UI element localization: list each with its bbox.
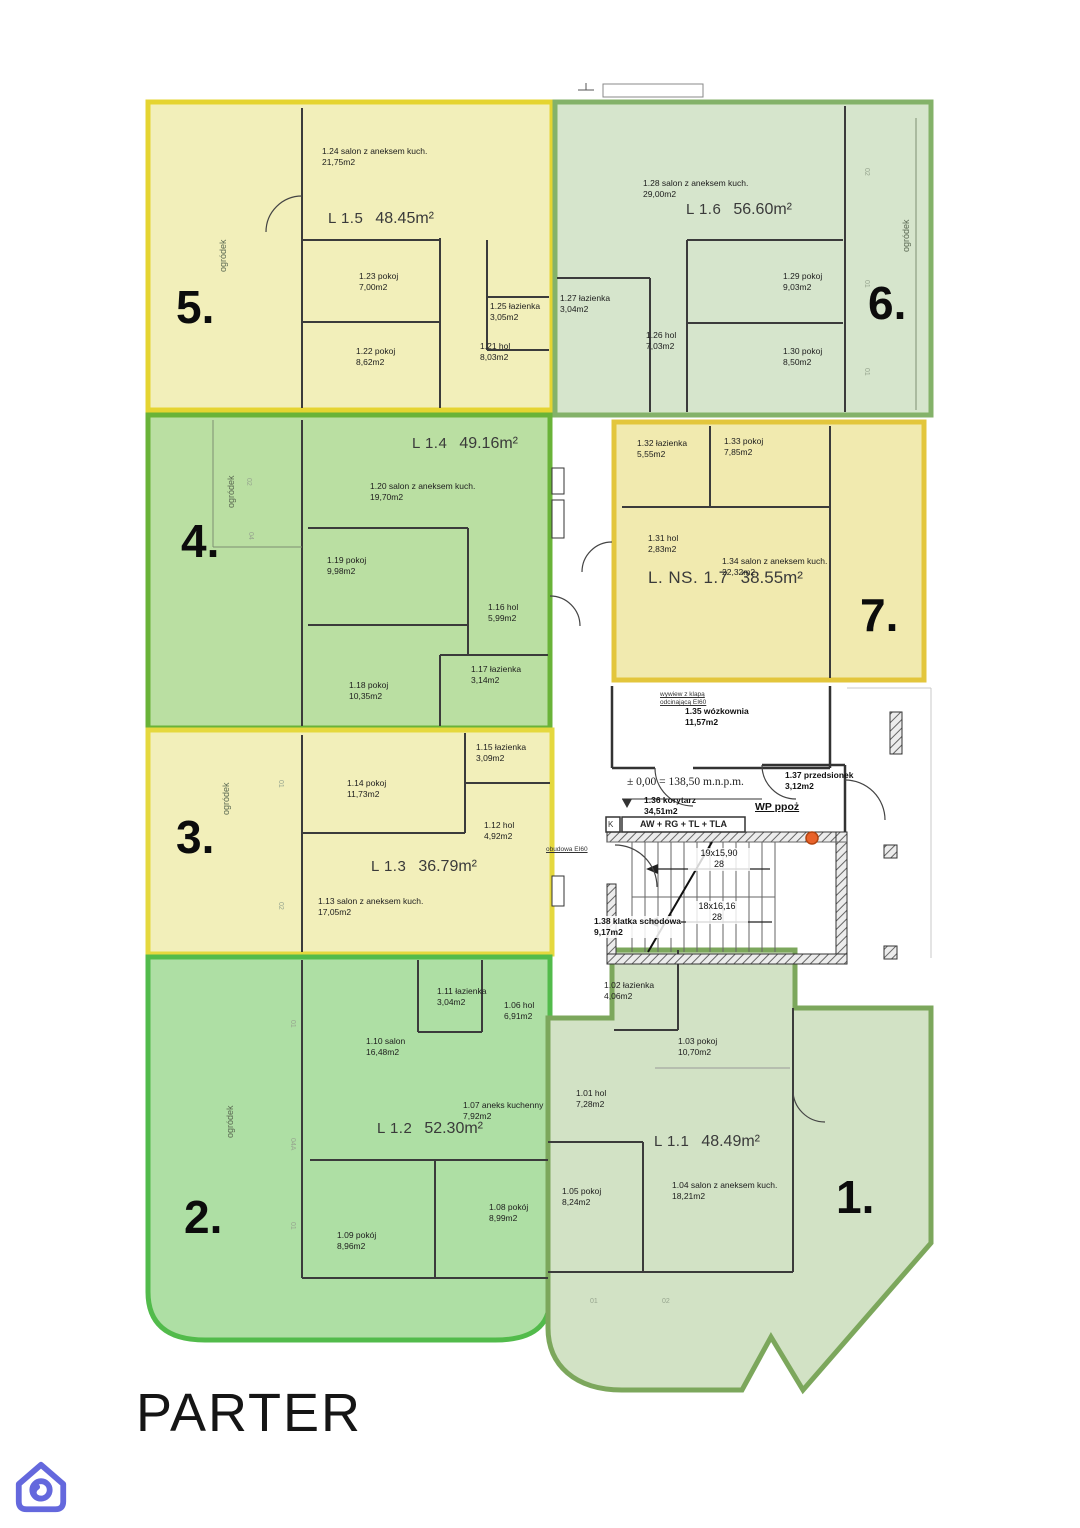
- fire-hydrant-label: WP ppoż: [755, 801, 799, 813]
- room-label: 1.03 pokoj10,70m2: [678, 1036, 717, 1058]
- unit-area: 52.30m²: [424, 1120, 483, 1138]
- window-tag: 02: [245, 478, 252, 486]
- garden-label: ogródek: [221, 782, 231, 815]
- apartment-4-number: 4.: [181, 514, 219, 568]
- fire-hydrant-marker: [806, 832, 818, 844]
- panel-k-label: K: [608, 820, 613, 829]
- room-label: 1.06 hol6,91m2: [504, 1000, 534, 1022]
- room-label: 1.33 pokoj7,85m2: [724, 436, 763, 458]
- room-label: 1.05 pokoj8,24m2: [562, 1186, 601, 1208]
- klatka-schodowa-label: 1.38 klatka schodowa9,17m2: [594, 916, 681, 938]
- window-tag: 01: [289, 1222, 296, 1230]
- garden-label: ogródek: [225, 1105, 235, 1138]
- window-tag: 04: [247, 532, 254, 540]
- apartment-2-title: L 1.2 52.30m²: [377, 1120, 483, 1138]
- room-label: 1.09 pokój8,96m2: [337, 1230, 376, 1252]
- room-label: 1.29 pokoj9,03m2: [783, 271, 822, 293]
- room-label: 1.32 łazienka5,55m2: [637, 438, 687, 460]
- apartment-1-title: L 1.1 48.49m²: [654, 1133, 760, 1151]
- room-label: 1.12 hol4,92m2: [484, 820, 514, 842]
- window-tag: 04A: [289, 1138, 296, 1150]
- apartment-6-number: 6.: [868, 276, 906, 330]
- garden-label: ogródek: [901, 219, 911, 252]
- unit-id: L 1.3: [371, 858, 406, 875]
- stairs-up-label: 19x15,9028: [688, 848, 750, 871]
- window-tag: 01: [590, 1298, 598, 1305]
- room-label: 1.14 pokoj11,73m2: [347, 778, 386, 800]
- room-label: 1.07 aneks kuchenny7,92m2: [463, 1100, 543, 1122]
- unit-area: 49.16m²: [459, 435, 518, 453]
- column: [884, 845, 897, 858]
- window-tag: 02: [662, 1298, 670, 1305]
- room-label: 1.25 łazienka3,05m2: [490, 301, 540, 323]
- window-tag: 01: [277, 780, 284, 788]
- room-label: 1.23 pokoj7,00m2: [359, 271, 398, 293]
- room-label: 1.01 hol7,28m2: [576, 1088, 606, 1110]
- przedsionek-label: 1.37 przedsionek3,12m2: [785, 770, 854, 792]
- column: [884, 946, 897, 959]
- room-label: 1.18 pokoj10,35m2: [349, 680, 388, 702]
- apartment-7-number: 7.: [860, 588, 898, 642]
- unit-area: 36.79m²: [418, 858, 477, 876]
- apartment-5-title: L 1.5 48.45m²: [328, 210, 434, 228]
- garden-label: ogródek: [218, 239, 228, 272]
- apartment-2-region: [148, 957, 550, 1340]
- shaft-box: [552, 876, 564, 906]
- room-label: 1.16 hol5,99m2: [488, 602, 518, 624]
- room-label: 1.21 hol8,03m2: [480, 341, 510, 363]
- faint-terrace-outline: [847, 688, 931, 958]
- apartment-4-title: L 1.4 49.16m²: [412, 435, 518, 453]
- room-label: 1.02 łazienka4,06m2: [604, 980, 654, 1002]
- stair-wall-bottom: [607, 954, 847, 964]
- stairs-down-label: 18x16,1628: [686, 901, 748, 924]
- apartment-2-number: 2.: [184, 1190, 222, 1244]
- window-tag: 02: [863, 168, 870, 176]
- entrance-canopy: [603, 84, 703, 97]
- room-label: 1.19 pokoj9,98m2: [327, 555, 366, 577]
- window-tag: 01: [289, 1020, 296, 1028]
- room-label: 1.30 pokoj8,50m2: [783, 346, 822, 368]
- room-label: 1.22 pokoj8,62m2: [356, 346, 395, 368]
- korytarz-label: 1.36 korytarz34,51m2: [644, 795, 696, 817]
- room-label: 1.10 salon16,48m2: [366, 1036, 405, 1058]
- unit-area: 48.49m²: [701, 1133, 760, 1151]
- apartment-5-number: 5.: [176, 280, 214, 334]
- dimension-tick: [578, 83, 594, 90]
- room-label: 1.31 hol2,83m2: [648, 533, 678, 555]
- window-tag: 01: [863, 368, 870, 376]
- apartment-3-title: L 1.3 36.79m²: [371, 858, 477, 876]
- window-tag: 02: [277, 902, 284, 910]
- room-label: 1.34 salon z aneksem kuch.22,32m2: [722, 556, 827, 578]
- apartment-6-region: [555, 102, 931, 415]
- room-label: 1.24 salon z aneksem kuch.21,75m2: [322, 146, 427, 168]
- vent-note: wywiew z klapą odcinającą EI60: [660, 691, 706, 707]
- column: [890, 712, 902, 754]
- room-label: 1.26 hol7,03m2: [646, 330, 676, 352]
- unit-area: 48.45m²: [375, 210, 434, 228]
- unit-id: L. NS. 1.7: [648, 568, 729, 588]
- unit-id: L 1.6: [686, 201, 721, 218]
- room-label: 1.11 łazienka3,04m2: [437, 986, 486, 1008]
- room-label: 1.08 pokój8,99m2: [489, 1202, 528, 1224]
- room-label: 1.20 salon z aneksem kuch.19,70m2: [370, 481, 475, 503]
- garden-label: ogródek: [226, 475, 236, 508]
- stair-wall-right: [836, 832, 847, 964]
- room-label: 1.04 salon z aneksem kuch.18,21m2: [672, 1180, 777, 1202]
- floor-title: PARTER: [136, 1382, 362, 1444]
- floor-plan-drawing: [0, 0, 1080, 1528]
- level-mark-arrow: [622, 799, 632, 808]
- apartment-1-number: 1.: [836, 1170, 874, 1224]
- shaft-box: [552, 468, 564, 494]
- unit-id: L 1.4: [412, 435, 447, 452]
- unit-id: L 1.2: [377, 1120, 412, 1137]
- shaft-box: [552, 500, 564, 538]
- enclosure-note: obudowa EI60: [546, 846, 588, 854]
- unit-area: 56.60m²: [733, 201, 792, 219]
- level-mark-label: ± 0,00 = 138,50 m.n.p.m.: [627, 776, 744, 788]
- electrical-panel-label: AW + RG + TL + TLA: [622, 819, 745, 829]
- stair-arrow-up-head: [646, 864, 658, 874]
- unit-id: L 1.5: [328, 210, 363, 227]
- room-label: 1.28 salon z aneksem kuch.29,00m2: [643, 178, 748, 200]
- room-label: 1.17 łazienka3,14m2: [471, 664, 521, 686]
- wozkownia-label: 1.35 wózkownia11,57m2: [685, 706, 749, 728]
- room-label: 1.13 salon z aneksem kuch.17,05m2: [318, 896, 423, 918]
- room-label: 1.27 łazienka3,04m2: [560, 293, 610, 315]
- unit-id: L 1.1: [654, 1133, 689, 1150]
- house-spiral-logo: [12, 1458, 70, 1521]
- room-label: 1.15 łazienka3,09m2: [476, 742, 526, 764]
- apartment-3-number: 3.: [176, 810, 214, 864]
- apartment-6-title: L 1.6 56.60m²: [686, 201, 792, 219]
